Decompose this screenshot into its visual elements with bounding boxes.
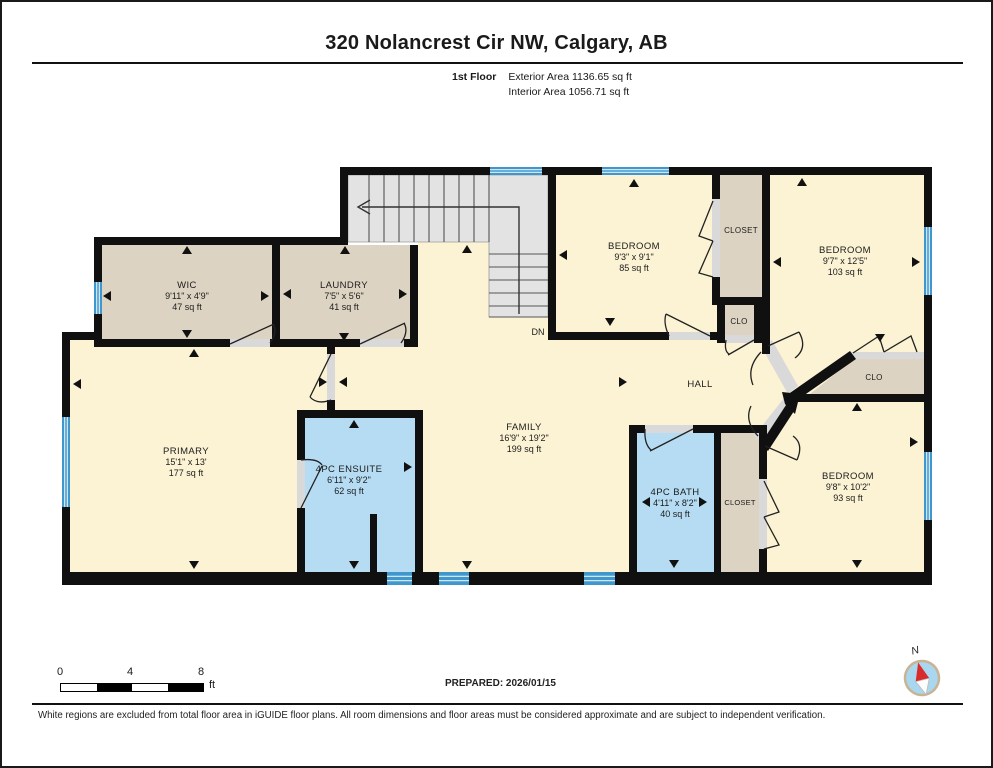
footer-divider [32, 703, 963, 705]
compass-icon: N [896, 640, 948, 702]
clo-hall-label: CLO [730, 317, 747, 326]
floor-stats: 1st Floor Exterior Area 1136.65 sq ft In… [452, 70, 632, 100]
clo-bedroom3-label: CLO [865, 373, 882, 382]
exterior-area: Exterior Area 1136.65 sq ft [508, 70, 632, 85]
bedroom3-label: BEDROOM [819, 245, 871, 256]
scale-mid: 4 [127, 666, 133, 678]
bedroom2-dims: 9'3" x 9'1" [614, 252, 653, 262]
floor-label: 1st Floor [452, 70, 496, 100]
bedroom2-label: BEDROOM [608, 241, 660, 252]
closet-lower-label: CLOSET [724, 498, 755, 507]
laundry-dims: 7'5" x 5'6" [324, 291, 363, 301]
bedroom4-label: BEDROOM [822, 471, 874, 482]
ensuite-area: 62 sq ft [334, 486, 364, 496]
scale-bar: 0 4 8 ft [57, 666, 287, 706]
bedroom2-area: 85 sq ft [619, 263, 649, 273]
laundry-label: LAUNDRY [320, 280, 368, 291]
page-title: 320 Nolancrest Cir NW, Calgary, AB [2, 32, 991, 55]
hall-label: HALL [687, 379, 712, 390]
bath-dims: 4'11" x 8'2" [653, 498, 697, 508]
ensuite-dims: 6'11" x 9'2" [327, 475, 371, 485]
scale-bar-track [60, 683, 204, 692]
floor-plan-page: WIC 9'11" x 4'9" 47 sq ft LAUNDRY 7'5" x… [0, 0, 993, 768]
prepared-date: PREPARED: 2026/01/15 [445, 678, 556, 689]
wic-label: WIC [177, 280, 197, 291]
bedroom4-dims: 9'8" x 10'2" [826, 482, 870, 492]
interior-area: Interior Area 1056.71 sq ft [508, 85, 632, 100]
scale-end: 8 [198, 666, 204, 678]
scale-start: 0 [57, 666, 63, 678]
primary-dims: 15'1" x 13' [165, 457, 206, 467]
ensuite-label: 4PC ENSUITE [316, 464, 383, 475]
primary-label: PRIMARY [163, 446, 209, 457]
bath-area: 40 sq ft [660, 509, 690, 519]
family-dims: 16'9" x 19'2" [499, 433, 548, 443]
scale-unit: ft [209, 679, 215, 691]
laundry-area: 41 sq ft [329, 302, 359, 312]
wic-area: 47 sq ft [172, 302, 202, 312]
disclaimer-text: White regions are excluded from total fl… [38, 710, 825, 721]
area-stats: Exterior Area 1136.65 sq ft Interior Are… [508, 70, 632, 100]
room-floors [70, 175, 924, 572]
bedroom3-dims: 9'7" x 12'5" [823, 256, 867, 266]
stairs-dn-label: DN [532, 327, 545, 337]
header-divider [32, 62, 963, 64]
closet-upper-floor [720, 175, 762, 297]
family-label: FAMILY [506, 422, 542, 433]
compass-north-label: N [910, 644, 921, 658]
floor-plan-drawing: WIC 9'11" x 4'9" 47 sq ft LAUNDRY 7'5" x… [2, 2, 993, 768]
wic-dims: 9'11" x 4'9" [165, 291, 209, 301]
bedroom4-area: 93 sq ft [833, 493, 863, 503]
family-area: 199 sq ft [507, 444, 542, 454]
bath-label: 4PC BATH [651, 487, 700, 498]
primary-area: 177 sq ft [169, 468, 204, 478]
bedroom3-area: 103 sq ft [828, 267, 863, 277]
closet-upper-label: CLOSET [724, 226, 758, 235]
